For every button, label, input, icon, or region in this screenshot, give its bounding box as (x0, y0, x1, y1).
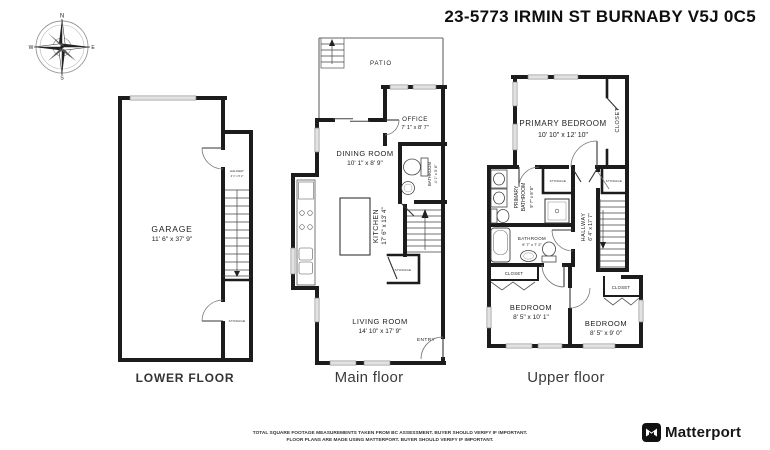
compass-star (34, 19, 90, 75)
bedroom2-door-icon (570, 288, 590, 308)
closet-left (491, 265, 538, 290)
bedroom-dims: 8' 5" x 9' 0" (590, 330, 623, 337)
door-arc-icon (202, 300, 223, 321)
hallway-label: HALLWAY (230, 169, 244, 173)
compass-west-label: W (29, 45, 34, 51)
bifold-door-icon (491, 282, 535, 290)
door-arc-icon (385, 120, 399, 135)
office-label: OFFICE (402, 116, 428, 123)
storage-label: STORAGE (229, 319, 246, 323)
kitchen-label: KITCHEN (373, 209, 380, 243)
upper-floor-caption: Upper floor (482, 369, 650, 386)
closet-label: CLOSET (505, 271, 524, 276)
storage-label: STORAGE (550, 179, 567, 183)
bathroom-dims: 9' 7" x 7' 2" (522, 242, 542, 247)
primary-bath-dims: 9' 7" x 8' 5" (529, 186, 534, 208)
storage-label: STORAGE (606, 179, 623, 183)
compass-north-label: N (60, 14, 64, 20)
closet-label: CLOSET (615, 107, 621, 132)
bathroom-dims: 4' 1" x 5' 6" (434, 164, 438, 183)
bedroom-label: BEDROOM (585, 319, 627, 328)
primary-bedroom-dims: 10' 10" x 12' 10" (538, 132, 589, 139)
dining-label: DINING ROOM (336, 149, 393, 158)
door-leaf-icon (401, 203, 414, 216)
bedroom1-door-icon (542, 265, 564, 287)
bathroom-label: BATHROOM (427, 162, 432, 186)
compass-south-label: S (60, 76, 64, 81)
entry-label: ENTRY (417, 337, 436, 343)
toilet-icon (404, 158, 429, 176)
bedroom-dims: 8' 5" x 10' 1" (513, 314, 549, 321)
sink-icon (521, 251, 537, 262)
matterport-logo: Matterport (642, 423, 741, 442)
floor-plan-page: 23-5773 IRMIN ST BURNABY V5J 0C5 N E S W (0, 0, 770, 450)
compass-east-label: E (91, 45, 95, 51)
compass-rose-icon: N E S W (28, 12, 96, 80)
living-dims: 14' 10" x 17' 9" (359, 328, 403, 335)
garage-dims: 11' 6" x 37' 9" (152, 236, 193, 243)
kitchen-island (340, 198, 370, 255)
lower-floor-caption: LOWER FLOOR (112, 371, 258, 385)
staircase-icon (600, 199, 625, 270)
garage-door-icon (130, 96, 196, 100)
hallway-dims: 3' 1" x 5' 2" (231, 174, 244, 178)
primary-bedroom-label: PRIMARY BEDROOM (519, 119, 606, 128)
staircase-icon (407, 209, 441, 252)
kitchen-counter-icon (297, 180, 315, 285)
main-floor-plan: PATIO OFFICE 7' 1" x 8' 7" DINING ROOM 1… (288, 30, 450, 368)
matterport-wordmark: Matterport (665, 424, 741, 441)
toilet-icon (542, 242, 556, 262)
primary-bath-label1: PRIMARY (514, 185, 520, 208)
disclaimer-line1: TOTAL SQUARE FOOTAGE MEASUREMENTS TAKEN … (230, 430, 550, 437)
lower-floor-plan: GARAGE 11' 6" x 37' 9" HALLWAY 3' 1" x 5… (112, 90, 258, 368)
shower-icon (545, 199, 569, 223)
door-arc-icon (202, 148, 223, 169)
storage-label: STORAGE (395, 268, 412, 272)
staircase-icon (223, 190, 251, 277)
closet-right (604, 277, 639, 305)
kitchen-dims: 17' 6" x 13' 4" (381, 207, 388, 244)
patio-steps-icon (321, 38, 344, 68)
disclaimer-text: TOTAL SQUARE FOOTAGE MEASUREMENTS TAKEN … (230, 430, 550, 444)
sink-icon (402, 182, 415, 195)
sliding-door-icon (333, 119, 370, 121)
bathtub-icon (491, 228, 510, 262)
disclaimer-line2: FLOOR PLANS ARE MADE USING MATTERPORT. B… (230, 437, 550, 444)
closet-label: CLOSET (612, 285, 631, 290)
primary-bath-label2: BATHROOM (521, 183, 527, 212)
patio-label: PATIO (370, 61, 392, 67)
toilet-icon (491, 209, 509, 223)
dining-dims: 10' 1" x 8' 9" (347, 160, 383, 167)
vanity-sink-icon (491, 170, 507, 207)
matterport-logo-icon (642, 423, 661, 442)
living-label: LIVING ROOM (352, 317, 408, 326)
upper-floor-plan: PRIMARY BEDROOM 10' 10" x 12' 10" CLOSET… (482, 60, 650, 368)
office-dims: 7' 1" x 8' 7" (401, 125, 429, 131)
garage-label: GARAGE (151, 224, 192, 234)
hallway-label: HALLWAY (581, 213, 587, 242)
bifold-door-icon (604, 298, 639, 305)
bathroom-label: BATHROOM (518, 236, 546, 241)
page-title: 23-5773 IRMIN ST BURNABY V5J 0C5 (444, 7, 756, 27)
hallway-dims: 6' 4" x 17' 7" (588, 213, 594, 241)
main-floor-caption: Main floor (288, 369, 450, 386)
bedroom-label: BEDROOM (510, 303, 552, 312)
